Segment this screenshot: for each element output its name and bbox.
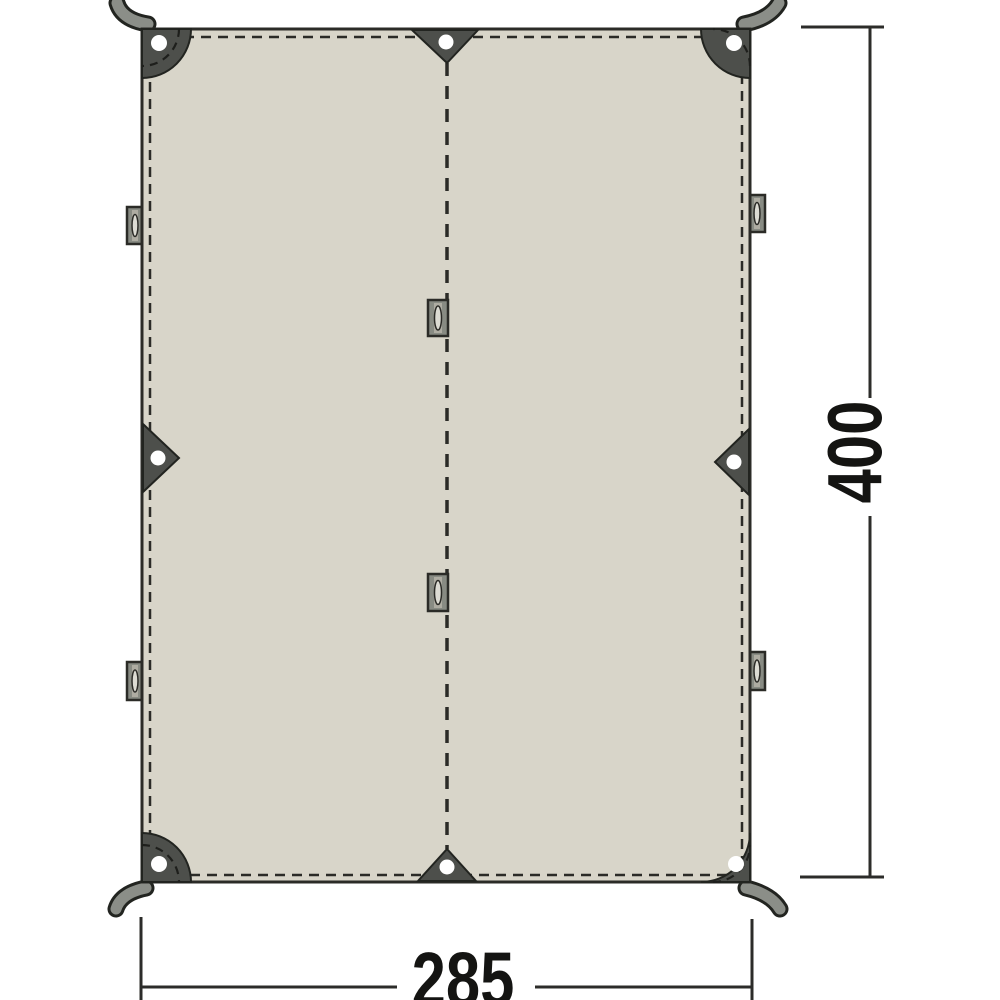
grommet-right-center <box>727 455 742 470</box>
seam-loop-upper <box>428 300 448 336</box>
grommet-top-left <box>151 35 167 51</box>
grommet-left-center <box>151 451 166 466</box>
corner-strap-top-left <box>117 3 148 24</box>
height-dimension-label: 400 <box>818 401 895 504</box>
corner-strap-bottom-left <box>116 888 146 909</box>
tarp-dimension-diagram: 285 400 <box>0 0 1000 1000</box>
corner-strap-bottom-right <box>746 888 780 909</box>
grommet-bottom-right <box>728 856 744 872</box>
corner-strap-top-right <box>744 3 779 24</box>
grommet-top-right <box>726 35 742 51</box>
seam-loop-lower <box>428 574 448 611</box>
width-dimension-label: 285 <box>412 942 515 1000</box>
grommet-top-center <box>439 35 454 50</box>
grommet-bottom-center <box>440 860 455 875</box>
grommet-bottom-left <box>151 856 167 872</box>
